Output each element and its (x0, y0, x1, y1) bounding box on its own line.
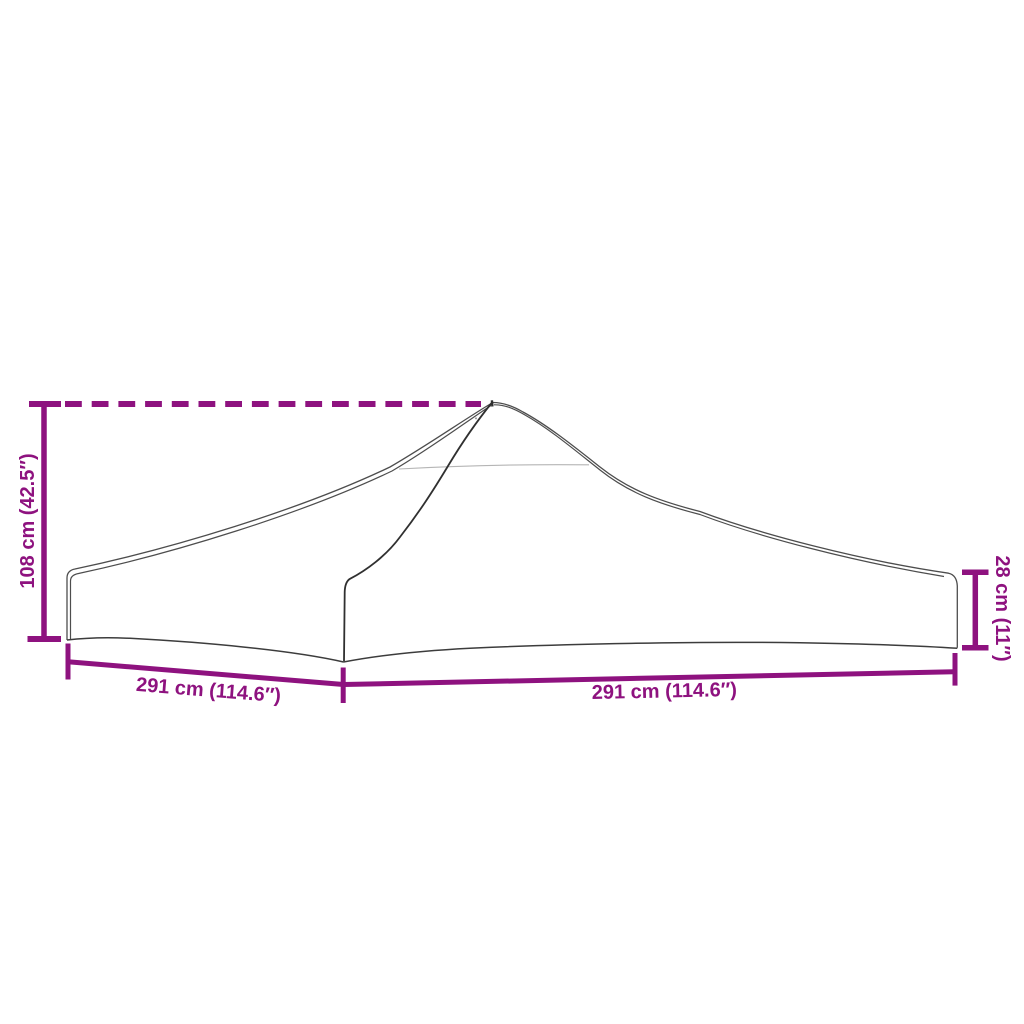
svg-text:291 cm (114.6″): 291 cm (114.6″) (592, 679, 738, 704)
svg-text:108 cm (42.5″): 108 cm (42.5″) (17, 453, 39, 588)
svg-text:28 cm (11″): 28 cm (11″) (991, 555, 1013, 661)
